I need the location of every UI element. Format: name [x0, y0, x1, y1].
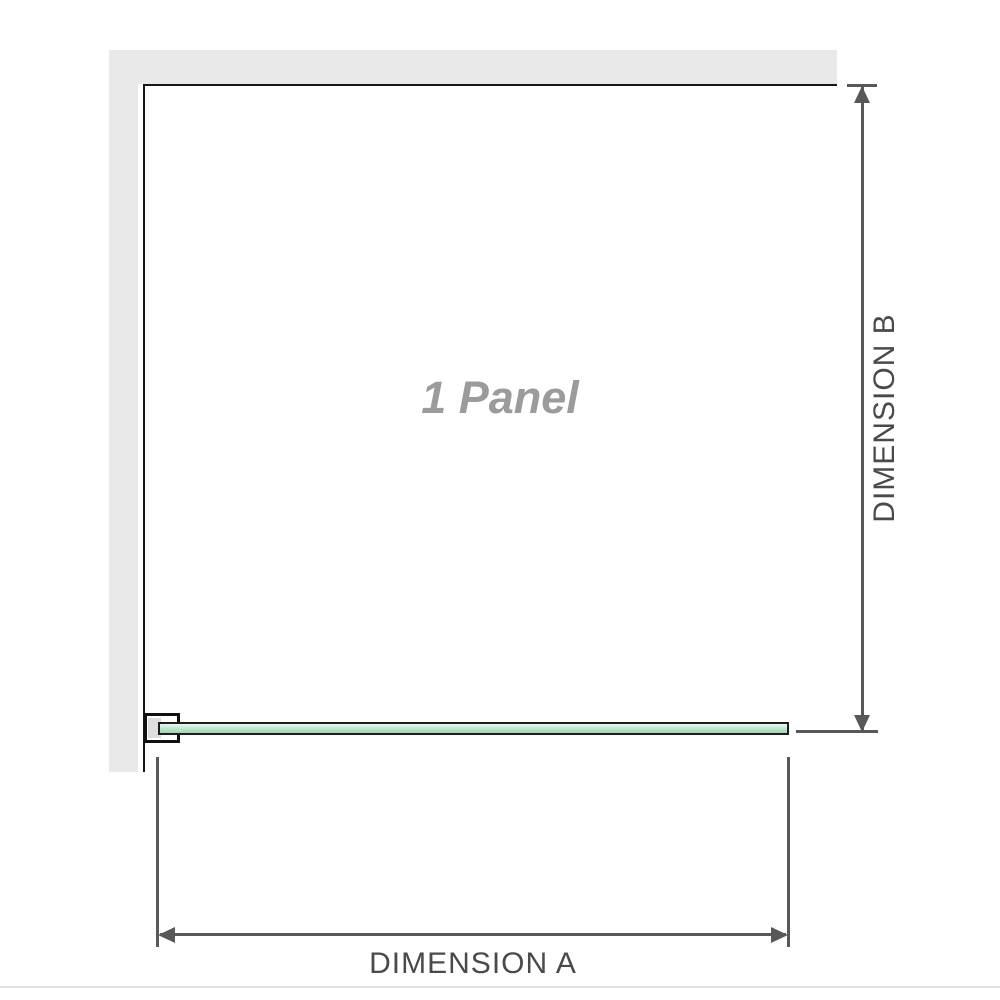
dimension-a-label: DIMENSION A [323, 948, 623, 980]
dimension-b-arrow-down-icon [854, 715, 870, 732]
dimension-a-line [160, 933, 786, 936]
dimension-b-arrow-up-icon [854, 86, 870, 103]
dimension-a-extension-left [156, 757, 159, 947]
glass-panel [158, 722, 789, 735]
dimension-b-label: DIMENSION B [869, 268, 901, 568]
wall-top [109, 50, 837, 84]
dimension-a-arrow-right-icon [771, 927, 788, 943]
dimension-a-arrow-left-icon [158, 927, 175, 943]
panel-outline-top [143, 84, 837, 86]
footer-divider [0, 986, 1000, 988]
dimension-a-extension-right [787, 757, 790, 947]
dimension-b-line [861, 87, 864, 732]
wall-left [109, 50, 138, 772]
panel-count-watermark: 1 Panel [350, 372, 650, 424]
shower-panel-diagram: 1 Panel DIMENSION B DIMENSION A [0, 0, 1000, 1000]
panel-outline-left [143, 84, 145, 772]
